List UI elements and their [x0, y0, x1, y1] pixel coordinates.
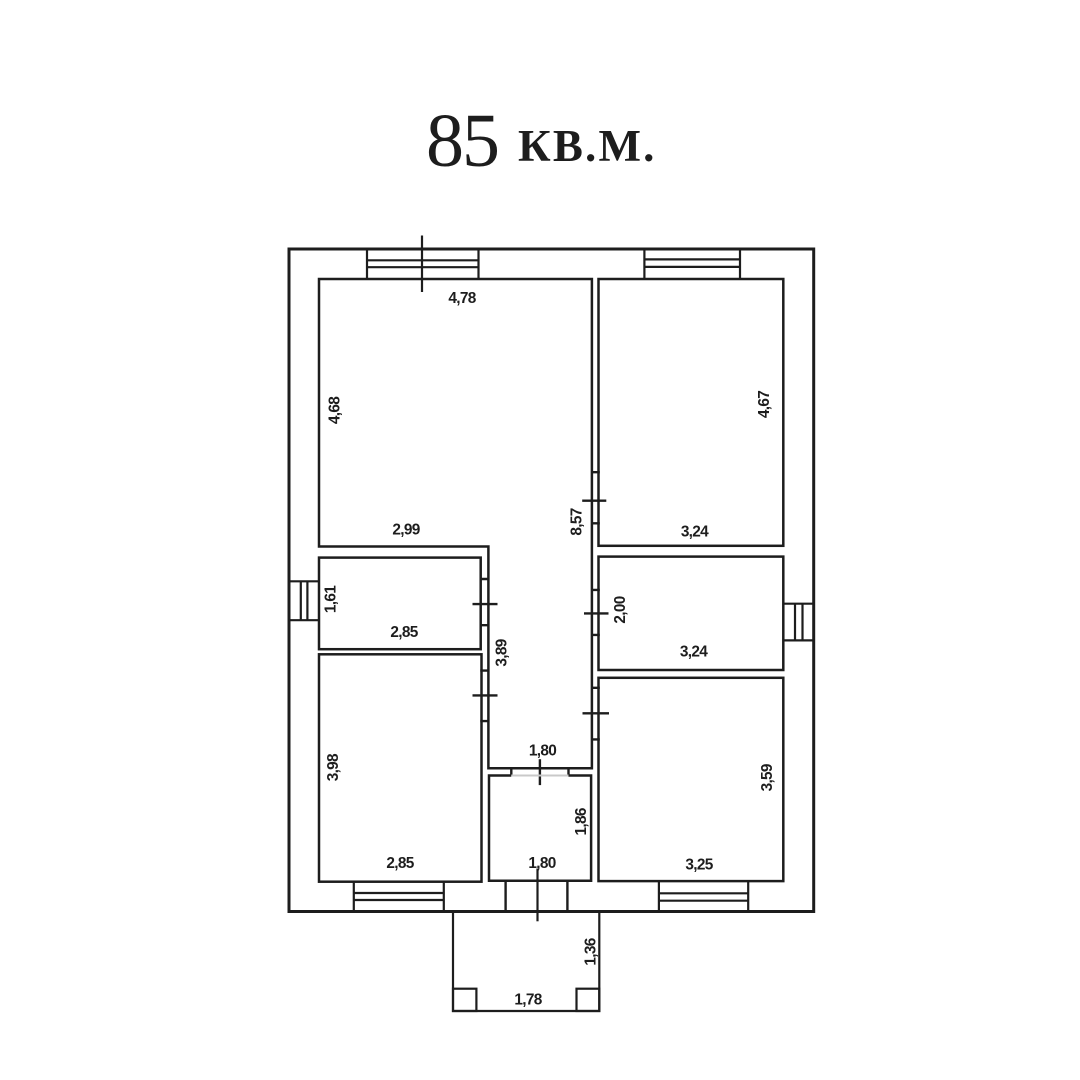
svg-text:3,59: 3,59	[759, 764, 776, 791]
svg-text:85: 85	[426, 99, 498, 183]
svg-text:1,78: 1,78	[514, 992, 542, 1009]
svg-text:2,00: 2,00	[612, 596, 629, 623]
svg-text:2,99: 2,99	[392, 521, 419, 538]
svg-text:КВ.М.: КВ.М.	[518, 121, 657, 171]
svg-text:1,80: 1,80	[528, 855, 555, 872]
svg-text:1,61: 1,61	[322, 585, 339, 613]
svg-text:4,68: 4,68	[326, 396, 343, 424]
svg-text:1,86: 1,86	[573, 808, 590, 835]
svg-text:8,57: 8,57	[568, 508, 585, 535]
svg-text:2,85: 2,85	[390, 624, 418, 641]
svg-text:2,85: 2,85	[386, 855, 414, 872]
svg-text:3,24: 3,24	[680, 643, 708, 660]
svg-text:1,36: 1,36	[582, 938, 599, 965]
svg-text:3,98: 3,98	[325, 753, 342, 781]
svg-text:4,67: 4,67	[756, 391, 773, 418]
svg-text:3,24: 3,24	[681, 524, 709, 541]
svg-text:3,89: 3,89	[493, 639, 510, 666]
svg-text:3,25: 3,25	[685, 856, 713, 873]
svg-text:4,78: 4,78	[448, 290, 476, 307]
svg-text:1,80: 1,80	[529, 743, 556, 760]
